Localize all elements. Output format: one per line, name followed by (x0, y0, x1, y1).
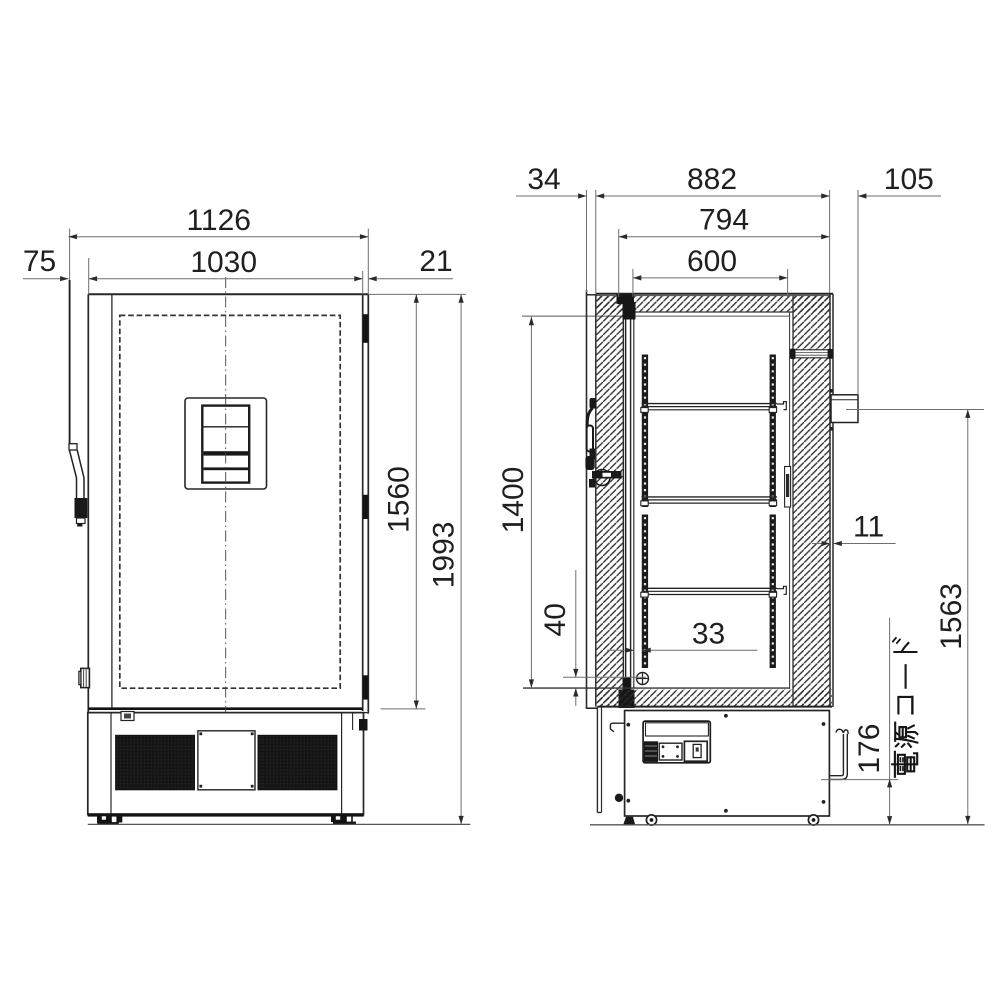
svg-text:1993: 1993 (428, 522, 461, 589)
svg-text:1030: 1030 (190, 246, 257, 279)
svg-text:33: 33 (692, 618, 725, 651)
svg-text:34: 34 (527, 163, 560, 196)
svg-text:794: 794 (699, 204, 749, 237)
svg-text:40: 40 (539, 603, 572, 636)
svg-text:882: 882 (687, 163, 737, 196)
svg-text:600: 600 (687, 245, 737, 278)
svg-text:1560: 1560 (383, 466, 416, 533)
svg-text:176: 176 (853, 724, 886, 774)
svg-text:1400: 1400 (497, 467, 530, 534)
svg-text:1563: 1563 (935, 583, 968, 650)
svg-text:105: 105 (884, 163, 934, 196)
svg-text:1126: 1126 (186, 204, 251, 237)
svg-text:21: 21 (419, 245, 452, 278)
svg-text:75: 75 (23, 245, 56, 278)
svg-text:11: 11 (853, 511, 884, 544)
